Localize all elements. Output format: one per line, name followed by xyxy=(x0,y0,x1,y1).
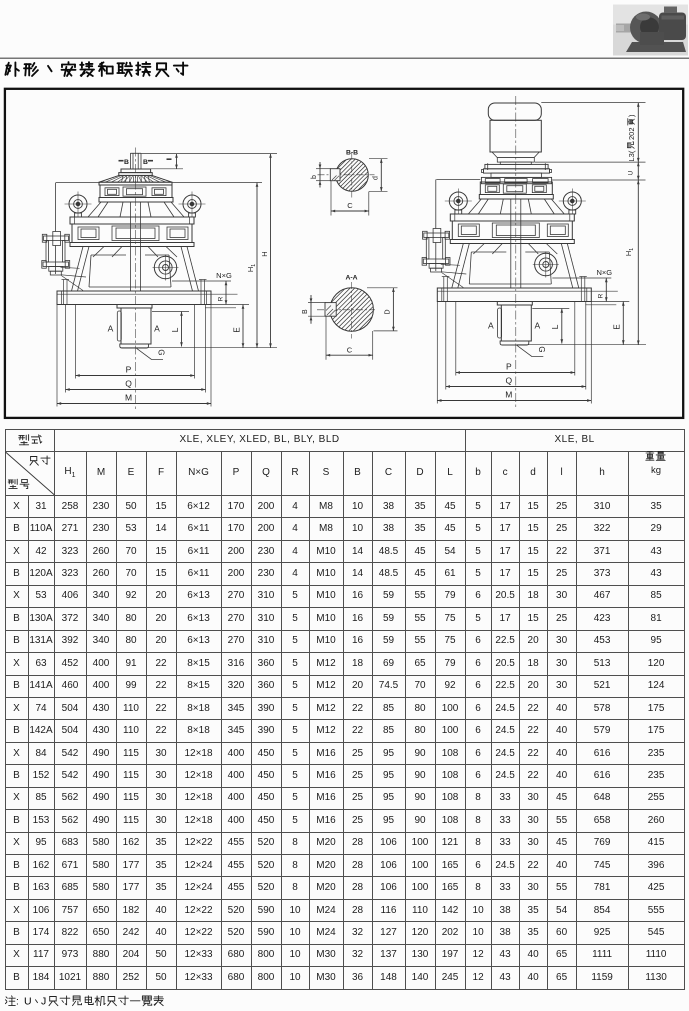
svg-text:J: J xyxy=(41,996,46,1008)
svg-text:L3(: L3( xyxy=(627,150,636,161)
svg-text:H1: H1 xyxy=(246,264,257,272)
svg-text:b: b xyxy=(311,175,318,179)
svg-text:B: B xyxy=(302,309,309,314)
svg-text:A-A: A-A xyxy=(345,275,357,282)
svg-text:D: D xyxy=(385,309,392,314)
svg-text:d: d xyxy=(373,176,380,180)
svg-text:H1: H1 xyxy=(624,248,635,256)
svg-text::: : xyxy=(16,997,19,1008)
svg-text:B: B xyxy=(124,159,129,166)
svg-text:B: B xyxy=(143,159,148,166)
svg-text:B-B: B-B xyxy=(346,150,358,157)
svg-text:C: C xyxy=(347,201,353,210)
svg-text:C: C xyxy=(347,345,353,354)
svg-text:H: H xyxy=(260,251,269,256)
svg-text:202: 202 xyxy=(627,127,636,140)
svg-text:U: U xyxy=(628,171,635,175)
svg-text:): ) xyxy=(627,114,636,117)
svg-text:U: U xyxy=(24,996,32,1008)
